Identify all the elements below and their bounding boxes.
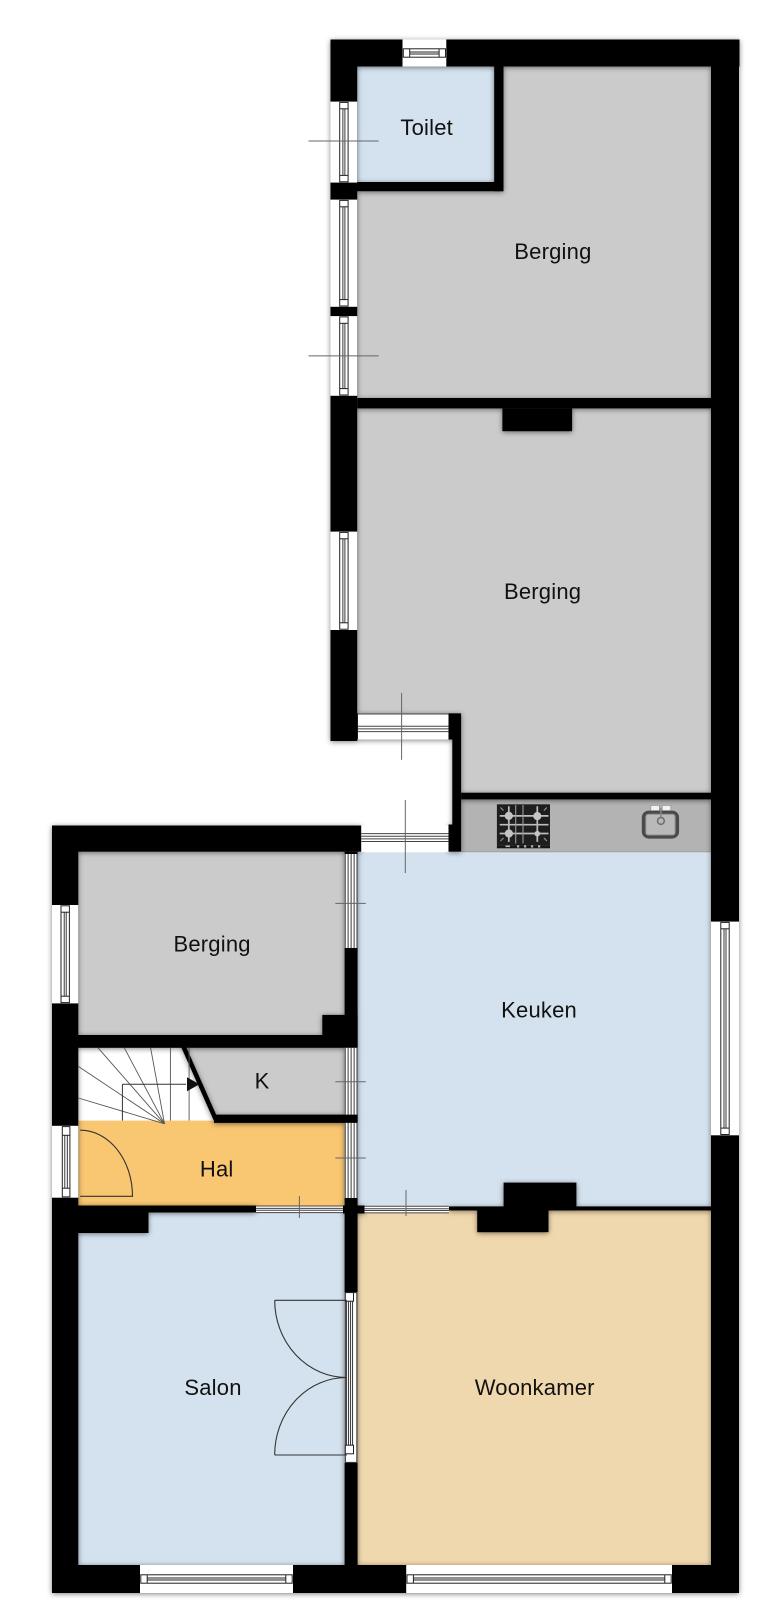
svg-text:Woonkamer: Woonkamer <box>475 1375 595 1400</box>
svg-text:Hal: Hal <box>200 1157 234 1182</box>
svg-text:Toilet: Toilet <box>400 115 453 140</box>
svg-text:Berging: Berging <box>173 932 250 957</box>
svg-text:Berging: Berging <box>504 579 581 604</box>
svg-text:K: K <box>255 1069 270 1094</box>
svg-text:Salon: Salon <box>184 1375 241 1400</box>
svg-text:Berging: Berging <box>514 239 591 264</box>
svg-text:Keuken: Keuken <box>501 998 577 1023</box>
